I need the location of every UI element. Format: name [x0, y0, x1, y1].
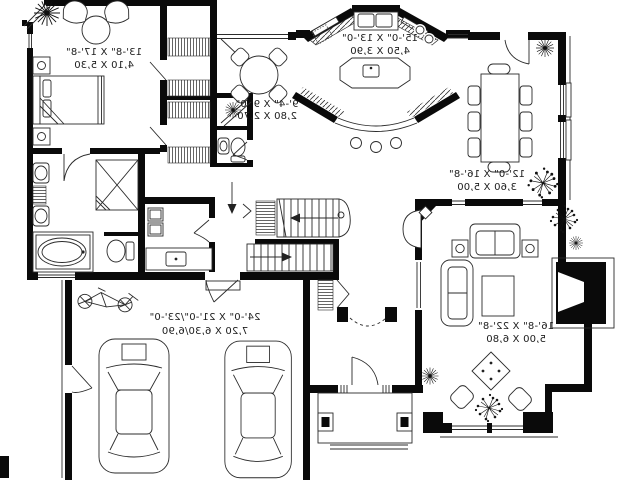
label-kitchen-metric: 4,50 X 3,90	[350, 46, 410, 57]
floor-plan-drawing: 13'-8" X 17'-8" 4,10 X 5,30 15'-0" X 13'…	[0, 0, 640, 480]
pillow	[43, 80, 51, 97]
vanity-cabinet	[33, 186, 46, 204]
master-bath	[33, 160, 138, 272]
plant-icon	[422, 368, 439, 385]
label-garage-imperial: 24'-0" X 21'-0"/23'-0"	[149, 312, 260, 323]
label-master-bedroom-metric: 4,10 X 5,30	[74, 60, 134, 71]
dining-table	[481, 74, 519, 162]
coffee-table	[482, 276, 514, 316]
end-table	[522, 240, 538, 257]
closet-shelf	[168, 147, 210, 163]
stair-arrow-down	[282, 253, 292, 262]
loveseat	[441, 260, 473, 326]
laundry-door	[194, 220, 209, 242]
garage	[72, 280, 291, 478]
bicycle	[77, 283, 140, 319]
toilet	[107, 240, 125, 262]
round-table	[82, 16, 110, 44]
closet-shelf	[168, 80, 210, 96]
powder-room	[218, 138, 247, 162]
fireplace	[552, 258, 614, 328]
car	[99, 339, 169, 473]
label-living-metric: 5,00 X 6,80	[486, 334, 546, 345]
plant-icon	[569, 236, 583, 250]
label-dining-metric: 3,60 X 5,00	[457, 182, 517, 193]
label-kitchen-imperial: 15'-0" X 13'-0"	[342, 33, 418, 44]
car	[225, 341, 292, 478]
nightstand	[33, 128, 50, 145]
closet-shelf	[168, 38, 210, 56]
front-porch	[318, 393, 412, 449]
nightstand	[33, 57, 50, 74]
bar-stool	[371, 142, 382, 153]
kitchen-sink-basin	[358, 14, 374, 27]
kitchen-sink-basin	[376, 14, 392, 27]
sofa	[470, 224, 520, 258]
door-symbol	[243, 204, 251, 218]
label-living-imperial: 16'-8" X 22'-8"	[478, 321, 554, 332]
plant-icon	[34, 0, 60, 26]
walk-in-closets	[150, 38, 210, 163]
toilet	[231, 138, 245, 156]
floor-plan-page: 13'-8" X 17'-8" 4,10 X 5,30 15'-0" X 13'…	[0, 0, 640, 480]
archway	[350, 318, 386, 326]
label-nook-metric: 2,80 X 2,70	[237, 111, 297, 122]
label-nook-imperial: 9'-4" X 9'-0"	[235, 99, 298, 110]
bathtub	[33, 232, 93, 272]
porch-steps	[330, 445, 408, 449]
shower	[96, 160, 138, 210]
front-door	[352, 357, 378, 385]
direction-arrow	[228, 204, 237, 214]
label-master-bedroom-imperial: 13'-8" X 17'-8"	[66, 47, 142, 58]
label-garage-metric: 7,20 X 6,30/6,90	[162, 326, 249, 337]
label-dining-imperial: 12'-0" X 16'-8"	[449, 169, 525, 180]
bed	[33, 76, 104, 124]
plant-icon	[536, 39, 554, 57]
bar-stool	[391, 138, 402, 149]
end-table	[452, 240, 468, 257]
coat-closet	[318, 280, 333, 310]
closet-shelf	[168, 102, 210, 118]
breakfast-nook	[221, 39, 289, 105]
stair-arrow-up	[290, 214, 300, 223]
plant-icon	[475, 394, 503, 422]
plant-icon	[528, 168, 558, 198]
game-chair	[507, 386, 534, 413]
garage-side-door	[72, 366, 92, 393]
hall	[228, 182, 252, 218]
bath-door	[64, 154, 90, 181]
kitchen-dining-door	[505, 40, 529, 64]
console-table	[403, 210, 421, 248]
bifold-door	[337, 280, 349, 308]
laundry-room	[146, 208, 212, 270]
bar-stool	[351, 138, 362, 149]
game-chair	[449, 384, 476, 411]
game-table	[472, 352, 510, 390]
